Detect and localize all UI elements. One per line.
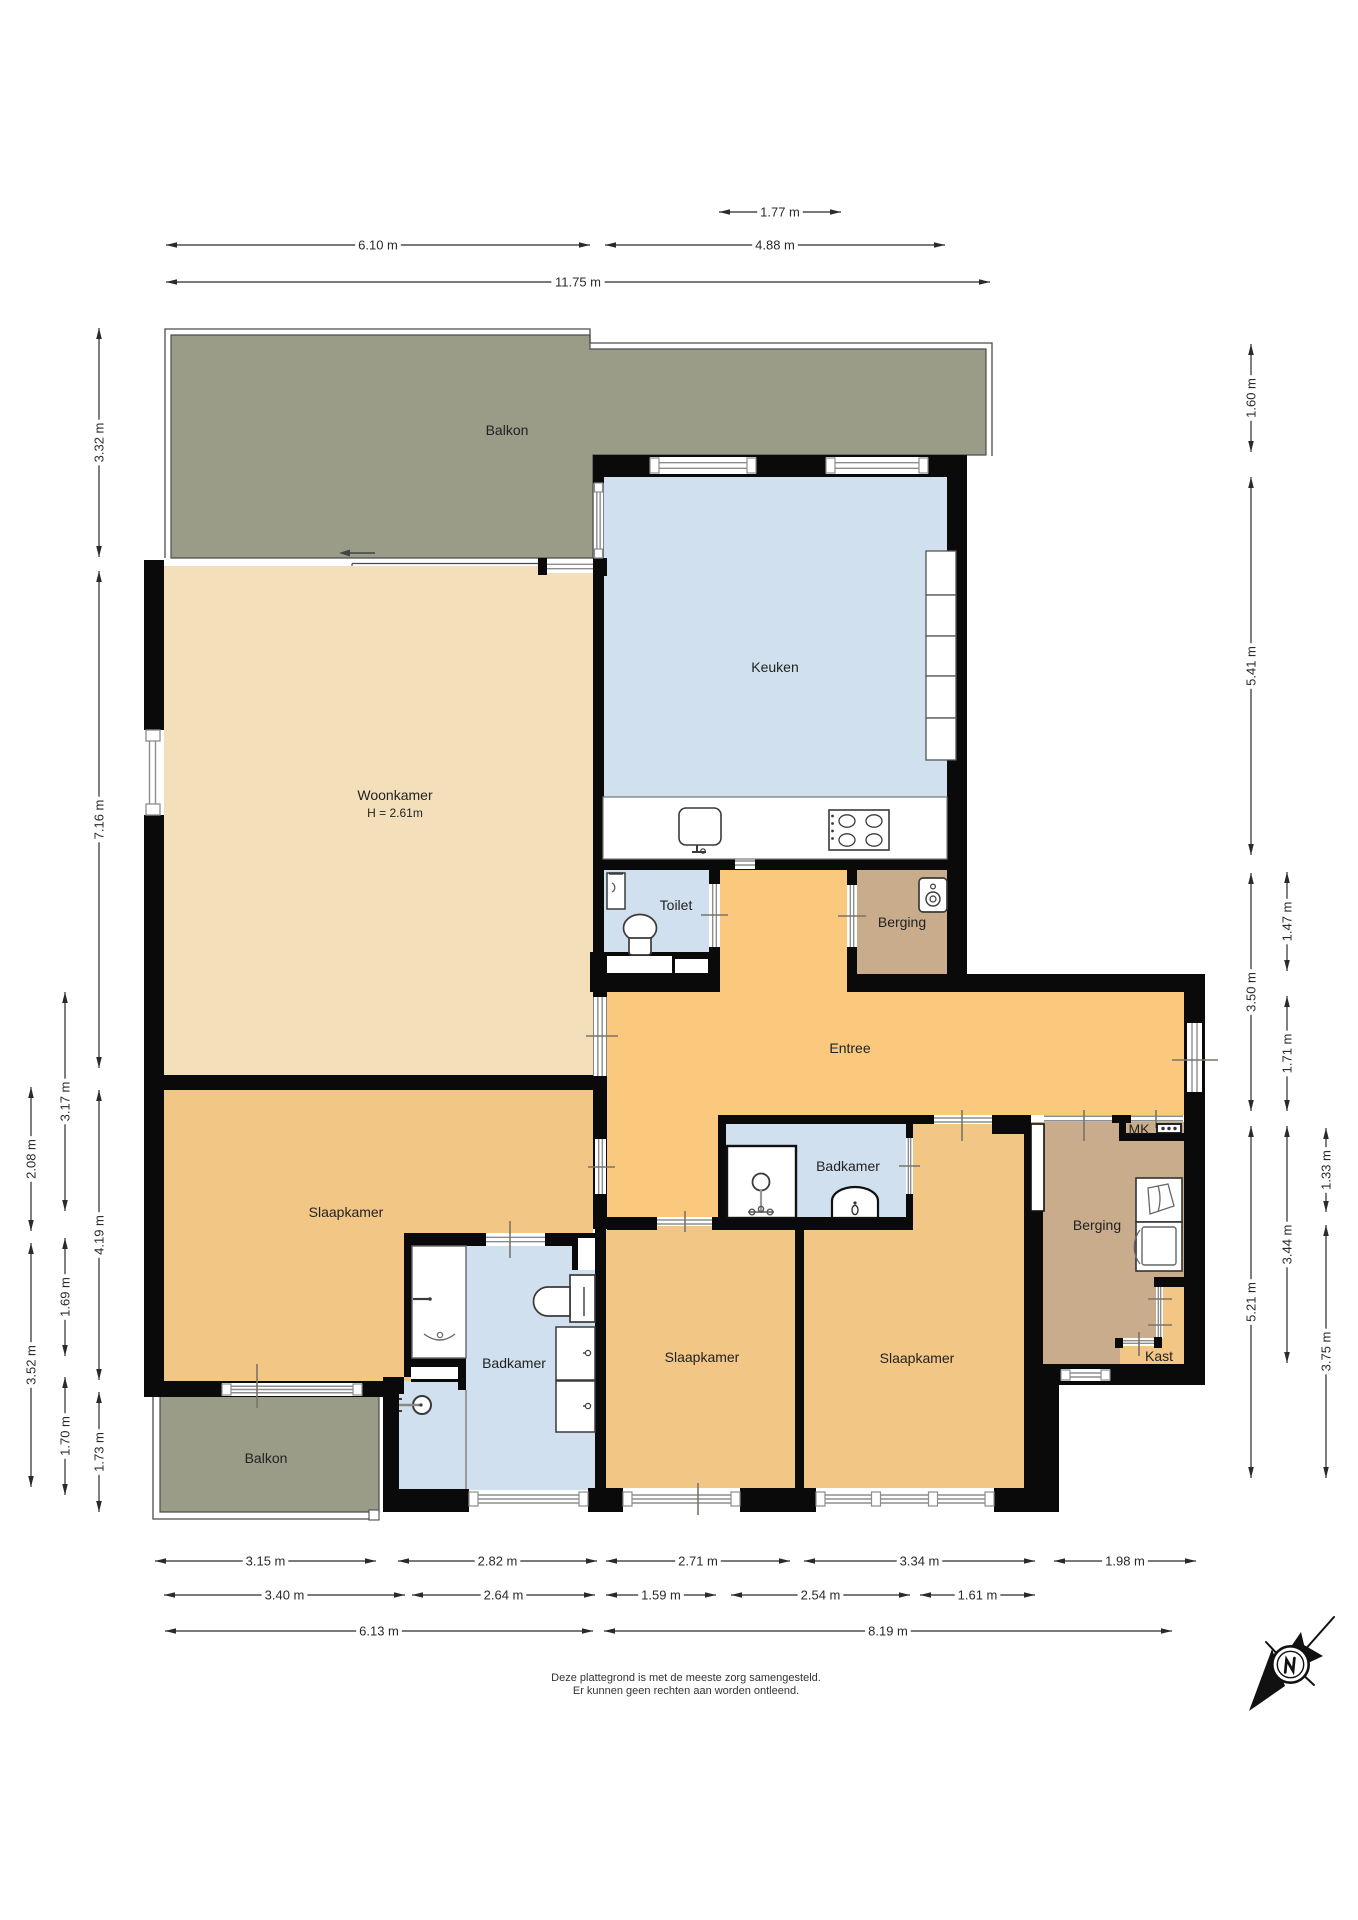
svg-text:Berging: Berging — [1073, 1217, 1121, 1233]
svg-text:8.19 m: 8.19 m — [868, 1624, 908, 1639]
svg-text:7.16 m: 7.16 m — [92, 800, 107, 840]
svg-text:3.50 m: 3.50 m — [1244, 972, 1259, 1012]
svg-text:Deze plattegrond is met de mee: Deze plattegrond is met de meeste zorg s… — [551, 1672, 821, 1684]
svg-text:MK: MK — [1129, 1121, 1151, 1137]
svg-text:1.69 m: 1.69 m — [58, 1277, 73, 1317]
svg-text:Kast: Kast — [1145, 1348, 1173, 1364]
svg-text:1.59 m: 1.59 m — [641, 1588, 681, 1603]
svg-text:3.44 m: 3.44 m — [1280, 1225, 1295, 1265]
svg-text:1.47 m: 1.47 m — [1280, 902, 1295, 942]
svg-text:4.88 m: 4.88 m — [755, 238, 795, 253]
svg-text:11.75 m: 11.75 m — [555, 275, 601, 290]
svg-text:2.08 m: 2.08 m — [24, 1139, 39, 1179]
svg-text:Badkamer: Badkamer — [816, 1158, 880, 1174]
svg-text:Balkon: Balkon — [486, 422, 529, 438]
svg-text:3.40 m: 3.40 m — [265, 1588, 305, 1603]
svg-text:2.82 m: 2.82 m — [478, 1554, 518, 1569]
svg-text:3.17 m: 3.17 m — [58, 1082, 73, 1122]
svg-text:3.52 m: 3.52 m — [24, 1345, 39, 1385]
svg-text:5.41 m: 5.41 m — [1244, 646, 1259, 686]
svg-text:Woonkamer: Woonkamer — [357, 787, 433, 803]
svg-text:2.64 m: 2.64 m — [484, 1588, 524, 1603]
svg-text:1.60 m: 1.60 m — [1244, 378, 1259, 418]
svg-text:1.71 m: 1.71 m — [1280, 1034, 1295, 1074]
svg-text:3.34 m: 3.34 m — [900, 1554, 940, 1569]
svg-text:Slaapkamer: Slaapkamer — [880, 1350, 955, 1366]
svg-text:3.75 m: 3.75 m — [1319, 1332, 1334, 1372]
svg-text:1.73 m: 1.73 m — [92, 1432, 107, 1472]
svg-text:Berging: Berging — [878, 914, 926, 930]
svg-text:1.61 m: 1.61 m — [958, 1588, 998, 1603]
svg-text:Keuken: Keuken — [751, 659, 798, 675]
svg-text:3.32 m: 3.32 m — [92, 423, 107, 463]
svg-text:H = 2.61m: H = 2.61m — [367, 806, 423, 820]
svg-text:1.33 m: 1.33 m — [1319, 1150, 1334, 1190]
svg-text:6.13 m: 6.13 m — [359, 1624, 399, 1639]
svg-text:Entree: Entree — [829, 1040, 870, 1056]
svg-text:Er kunnen geen rechten aan wor: Er kunnen geen rechten aan worden ontlee… — [573, 1685, 799, 1697]
svg-text:6.10 m: 6.10 m — [358, 238, 398, 253]
svg-text:4.19 m: 4.19 m — [92, 1215, 107, 1255]
svg-text:5.21 m: 5.21 m — [1244, 1282, 1259, 1322]
svg-text:Toilet: Toilet — [660, 897, 693, 913]
svg-text:1.70 m: 1.70 m — [58, 1416, 73, 1456]
svg-text:Slaapkamer: Slaapkamer — [309, 1204, 384, 1220]
svg-text:1.98 m: 1.98 m — [1105, 1554, 1145, 1569]
svg-text:3.15 m: 3.15 m — [246, 1554, 286, 1569]
svg-text:Balkon: Balkon — [245, 1450, 288, 1466]
svg-text:2.54 m: 2.54 m — [801, 1588, 841, 1603]
svg-text:Badkamer: Badkamer — [482, 1355, 546, 1371]
svg-text:Slaapkamer: Slaapkamer — [665, 1349, 740, 1365]
svg-text:1.77 m: 1.77 m — [760, 205, 800, 220]
svg-text:2.71 m: 2.71 m — [678, 1554, 718, 1569]
